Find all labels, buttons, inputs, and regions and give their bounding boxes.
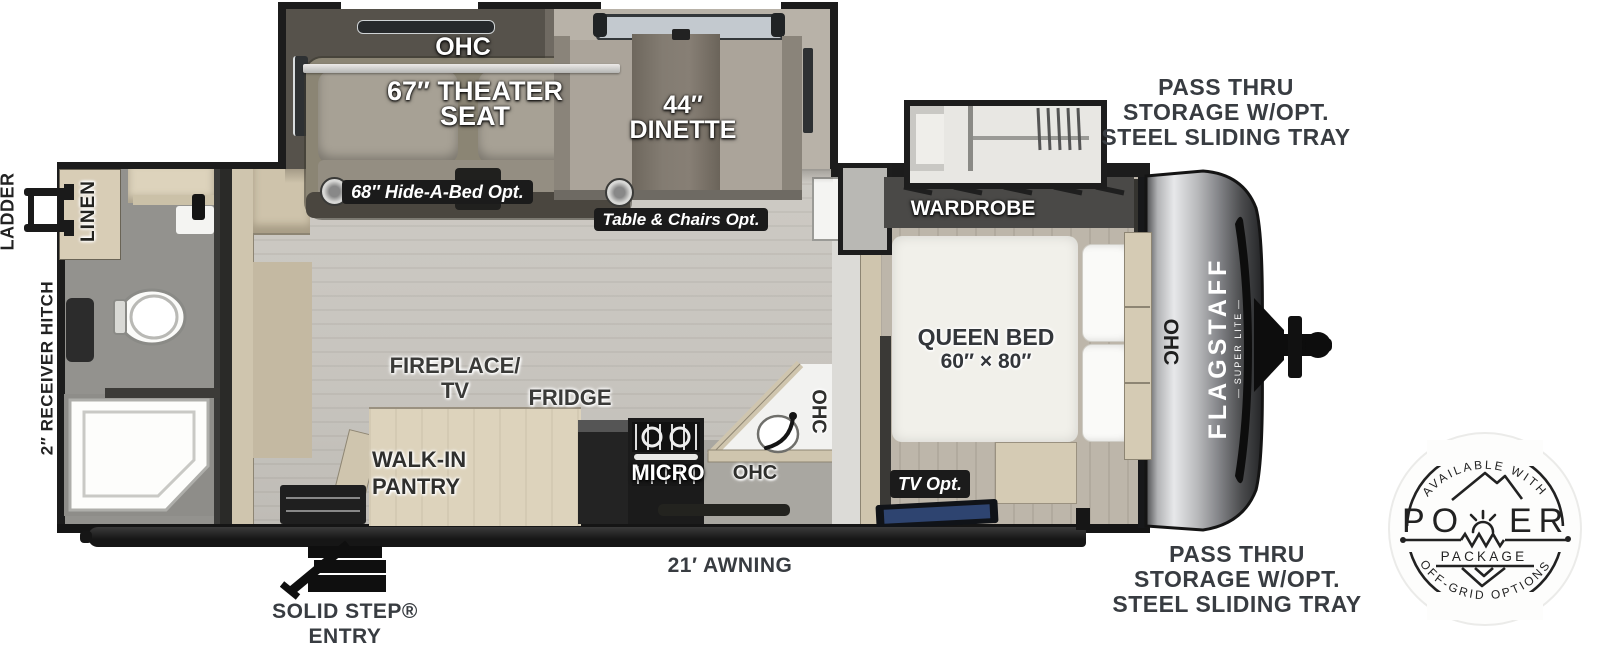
svg-text:ER: ER <box>1509 502 1570 540</box>
svg-text:PACKAGE: PACKAGE <box>1441 549 1528 564</box>
svg-text:PO: PO <box>1402 502 1465 540</box>
